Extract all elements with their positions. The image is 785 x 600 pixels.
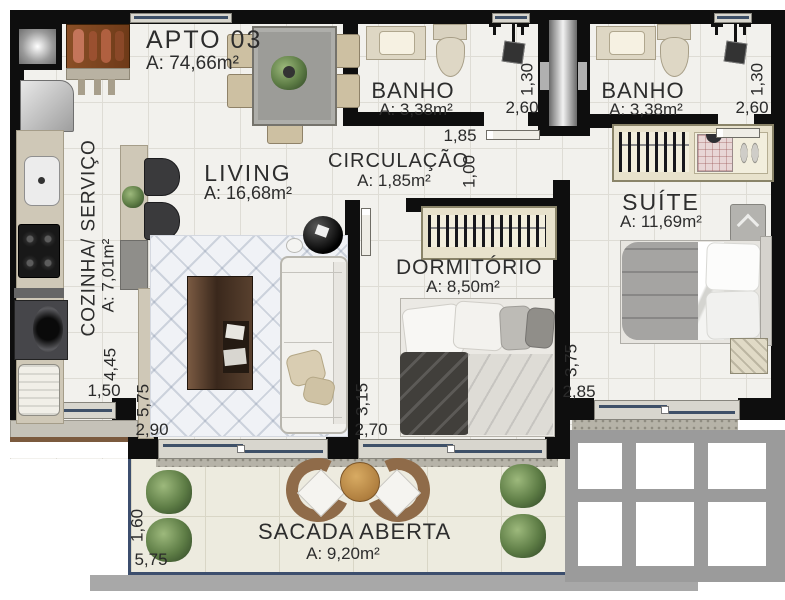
peninsula-counter-low: [120, 240, 148, 290]
valve-icon: [711, 24, 723, 35]
wall-pier-d: [570, 398, 594, 420]
nightstand: [730, 338, 768, 374]
window-glass: [667, 411, 735, 414]
room-suite-area: A: 11,69m²: [611, 213, 711, 230]
shaft-bracket: [578, 62, 587, 90]
window-vent-bath1: [492, 13, 530, 23]
dim-suite-width: 2,85: [554, 383, 604, 400]
console-book: [223, 348, 247, 366]
window-glass: [599, 405, 667, 408]
shaft-duct: [549, 20, 577, 126]
sofa-cushion-line: [284, 342, 332, 343]
window-handle: [237, 445, 245, 453]
dim-dormitorio-width: 2,70: [346, 421, 396, 438]
counter-shelf: [14, 288, 64, 298]
bottle: [89, 31, 97, 61]
room-banho1-name: BANHO: [363, 80, 463, 102]
window-glass: [453, 450, 542, 453]
pergola-cell: [636, 502, 694, 566]
console-book: [225, 324, 245, 340]
room-cozinha-name: COZINHA/ SERVIÇO: [80, 147, 99, 337]
duvet-light: [468, 354, 553, 435]
dim-banho1-width: 2,60: [497, 99, 547, 116]
room-cozinha-area: A: 7,01m²: [100, 221, 117, 331]
valve-icon: [489, 24, 501, 35]
window-glass: [134, 16, 228, 19]
bottle: [115, 31, 124, 61]
room-banho2-area: A: 3,38m²: [596, 101, 696, 118]
apartment-area: A: 74,66m²: [146, 54, 286, 73]
apartment-title: APTO 03: [146, 28, 286, 53]
door-bath2: [716, 128, 760, 138]
sofa: [280, 256, 348, 434]
pergola-grid: [565, 430, 785, 582]
bar-tab: [94, 79, 101, 95]
vanity-sink: [379, 31, 415, 55]
room-dormitorio-name: DORMITÓRIO: [396, 257, 531, 278]
kitchen-sink: [24, 156, 60, 206]
dim-sacada-width: 5,75: [126, 551, 176, 568]
balcony-plant: [500, 464, 546, 508]
wall-pier-c: [545, 437, 570, 459]
room-circulacao-name: CIRCULAÇÃO: [328, 151, 458, 171]
stool: [144, 158, 180, 196]
sofa-armrest: [282, 258, 342, 273]
washer-drum: [33, 306, 63, 352]
window-glass: [717, 16, 749, 19]
valve-icon: [517, 24, 529, 35]
shower-head-icon: [724, 41, 748, 65]
balcony-plant: [146, 470, 192, 514]
dim-cozinha-width: 1,50: [79, 382, 129, 399]
window-glass: [363, 444, 453, 447]
fridge: [20, 80, 74, 132]
left-patch: [10, 442, 128, 458]
dim-banho2-width: 2,60: [727, 99, 777, 116]
corner-column-cap: [19, 29, 56, 64]
window-glass: [243, 450, 323, 453]
sofa-back: [333, 262, 346, 424]
bed-pillow: [524, 307, 555, 349]
dim-living-depth: 5,75: [135, 376, 152, 426]
pergola-cell: [578, 502, 622, 566]
bed-pillow: [452, 300, 505, 351]
room-suite-name: SUÍTE: [611, 191, 711, 214]
bar-tab: [108, 79, 115, 95]
floor-plan: APTO 03 A: 74,66m² BANHO A: 3,38m² BANHO…: [0, 0, 785, 600]
wall-right: [771, 10, 785, 400]
dim-living-width: 2,90: [127, 421, 177, 438]
headboard: [760, 236, 772, 346]
window-suite: [594, 400, 740, 420]
laundry-sink: [18, 364, 60, 416]
dim-suite-depth: 3,75: [563, 336, 580, 386]
wardrobe-dormitorio: [421, 206, 557, 260]
room-sacada-area: A: 9,20m²: [273, 545, 413, 562]
balcony-plant: [500, 514, 546, 558]
window-dormitorio: [358, 439, 547, 459]
room-living-name: LIVING: [198, 162, 298, 185]
wall-bath1-left: [343, 10, 358, 126]
round-table: [340, 462, 380, 502]
pergola-cell: [636, 443, 694, 489]
bar-cabinet: [66, 24, 130, 70]
window-handle: [447, 445, 455, 453]
pergola-cell: [708, 502, 766, 566]
window-top-dining: [130, 13, 232, 23]
room-sacada-name: SACADA ABERTA: [258, 521, 428, 543]
dim-sacada-depth: 1,60: [129, 501, 146, 551]
wall-pier-b: [326, 437, 358, 459]
room-banho1-area: A: 3,38m²: [366, 101, 466, 118]
hanging-clothes: [619, 132, 689, 172]
room-banho2-name: BANHO: [593, 80, 693, 102]
wall-top: [10, 10, 785, 24]
door-bath1: [486, 130, 540, 140]
side-table: [303, 216, 343, 254]
sofa-armrest: [282, 417, 342, 432]
shoes: [738, 138, 762, 168]
window-glass: [163, 444, 243, 447]
door-dormitorio: [361, 208, 371, 256]
shower-stem: [512, 24, 515, 42]
dim-circulacao-depth: 1,00: [461, 147, 478, 197]
duvet-dark: [400, 352, 470, 435]
valve-icon: [739, 24, 751, 35]
window-living: [158, 439, 328, 459]
dim-banho1-depth: 1,30: [519, 55, 536, 105]
window-handle: [661, 406, 669, 414]
bottle: [73, 29, 84, 63]
tv-console: [187, 276, 253, 390]
vanity-sink: [609, 31, 645, 55]
dining-chair: [227, 74, 255, 108]
bottle: [101, 29, 111, 63]
side-table-card: [315, 224, 330, 238]
bar-tab: [78, 79, 85, 95]
dim-banho2-depth: 1,30: [749, 55, 766, 105]
counter-plant: [122, 186, 144, 208]
room-circulacao-area: A: 1,85m²: [334, 172, 454, 189]
washing-machine: [14, 300, 68, 360]
bed-pillow: [705, 242, 761, 292]
window-glass: [495, 16, 527, 19]
chevron-icon: [737, 214, 760, 237]
sink-drain: [38, 177, 45, 184]
window-vent-bath2: [714, 13, 752, 23]
hanging-clothes: [428, 215, 546, 247]
room-living-area: A: 16,68m²: [198, 184, 298, 202]
suite-duvet: [622, 242, 702, 340]
pergola-cell: [578, 443, 622, 489]
dim-circulacao-width: 1,85: [435, 127, 485, 144]
bed-pillow: [705, 290, 761, 340]
shower-stem: [734, 24, 737, 42]
mini-stool: [286, 238, 303, 253]
shaft-bracket: [540, 62, 549, 90]
stove: [18, 224, 60, 278]
pergola-cell: [708, 443, 766, 489]
wall-pier-e: [738, 398, 785, 420]
room-dormitorio-area: A: 8,50m²: [403, 278, 523, 295]
dim-dormitorio-depth: 3,15: [354, 375, 371, 425]
wall-pier-a: [128, 437, 158, 459]
